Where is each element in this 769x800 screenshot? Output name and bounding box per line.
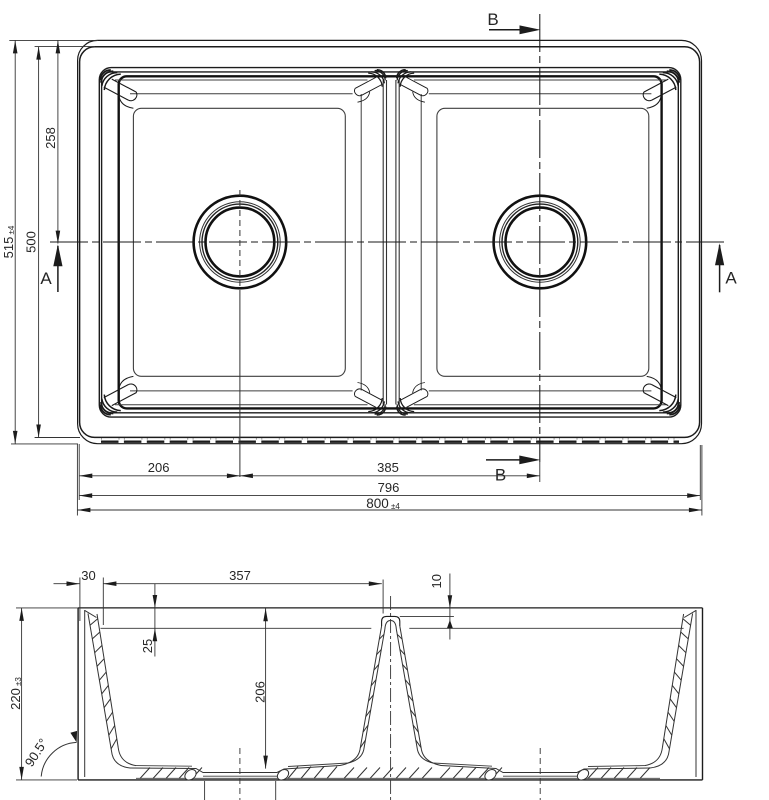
svg-text:206: 206 xyxy=(148,460,170,475)
svg-text:258: 258 xyxy=(43,127,58,149)
svg-text:500: 500 xyxy=(24,231,39,253)
svg-text:A: A xyxy=(725,269,737,288)
svg-text:25: 25 xyxy=(140,639,155,653)
svg-text:357: 357 xyxy=(229,568,251,583)
svg-text:A: A xyxy=(40,269,52,288)
svg-text:385: 385 xyxy=(377,460,399,475)
svg-text:796: 796 xyxy=(378,480,400,495)
svg-text:10: 10 xyxy=(429,574,444,588)
svg-text:B: B xyxy=(495,466,506,485)
svg-text:206: 206 xyxy=(252,681,267,703)
svg-text:B: B xyxy=(487,10,498,29)
svg-text:30: 30 xyxy=(81,568,95,583)
